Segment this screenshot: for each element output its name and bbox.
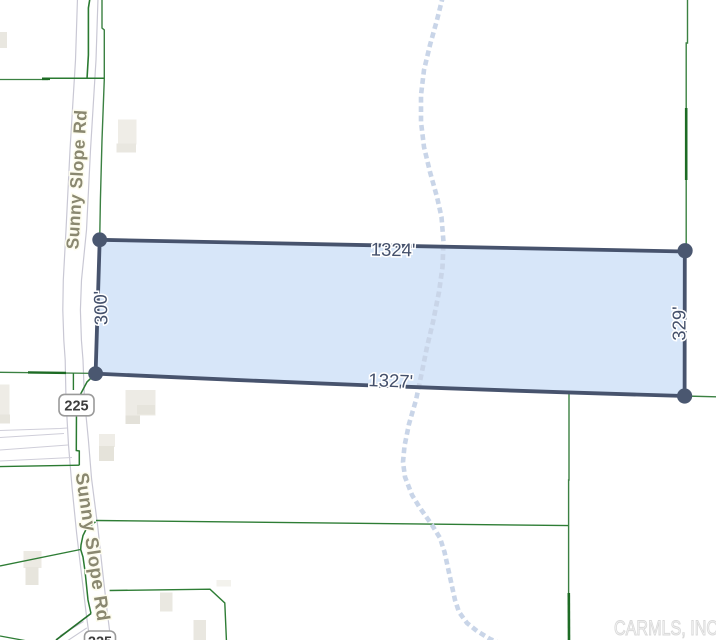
svg-text:CARMLS, INC: CARMLS, INC [614, 617, 716, 640]
svg-text:1324': 1324' [371, 239, 416, 261]
svg-text:300': 300' [89, 290, 111, 325]
svg-text:1327': 1327' [368, 369, 413, 392]
svg-text:225: 225 [88, 635, 112, 640]
svg-text:329': 329' [669, 306, 690, 340]
svg-text:225: 225 [64, 398, 88, 414]
